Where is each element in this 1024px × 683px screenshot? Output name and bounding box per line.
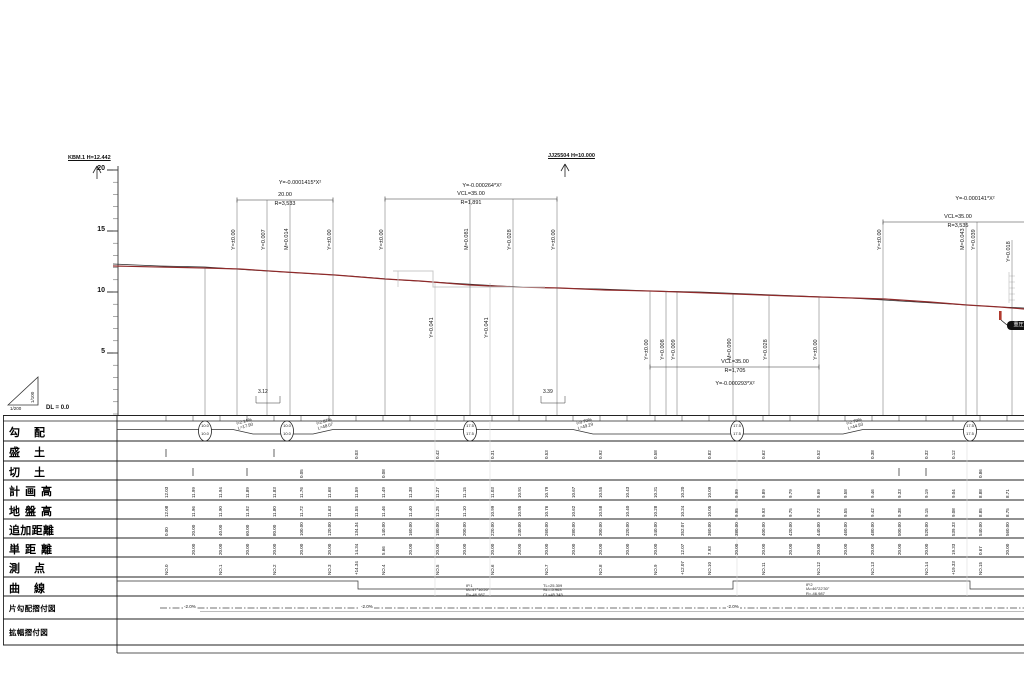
station-dist-value: 5.66 bbox=[381, 546, 386, 555]
offset-label: M=0.043 bbox=[960, 228, 966, 250]
station-plan-value: 9.69 bbox=[816, 489, 821, 498]
station-plan-value: 11.49 bbox=[381, 487, 386, 498]
station-cum-value: 540.00 bbox=[978, 522, 983, 536]
row-label-6: 単距離 bbox=[9, 541, 115, 557]
station-plan-value: 10.09 bbox=[707, 487, 712, 498]
station-cum-value: 134.34 bbox=[354, 522, 359, 536]
station-sta-value: NO.5 bbox=[435, 564, 440, 575]
vc-length-label: 20.00 bbox=[255, 192, 315, 198]
curve-data-cluster: IP.1 IA=47°16'20" R=-46.987 bbox=[466, 584, 489, 597]
station-plan-value: 11.38 bbox=[408, 487, 413, 498]
station-sta-value: NO.1 bbox=[218, 564, 223, 575]
vc-formula: Y=-0.0001415*X² bbox=[255, 180, 345, 186]
station-plan-value: 9.19 bbox=[924, 489, 929, 498]
offset-label: Y=±0.00 bbox=[327, 229, 333, 250]
station-sta-value: NO.10 bbox=[707, 562, 712, 575]
station-cum-value: 180.00 bbox=[435, 522, 440, 536]
row-label-10: 拡幅摺付図 bbox=[9, 627, 115, 638]
row-label-5: 追加距離 bbox=[9, 522, 115, 538]
station-plan-value: 8.71 bbox=[1005, 489, 1010, 498]
vc-length-label: VCL=35.00 bbox=[441, 191, 501, 197]
offset-label: M=0.090 bbox=[727, 338, 733, 360]
offset-label: Y=0.041 bbox=[429, 317, 435, 338]
station-cum-value: 100.00 bbox=[299, 522, 304, 536]
offset-label: M=0.014 bbox=[284, 228, 290, 250]
station-cum-value: 80.00 bbox=[272, 525, 277, 536]
station-cum-value: 500.00 bbox=[897, 522, 902, 536]
station-ground-value: 9.75 bbox=[788, 508, 793, 517]
oval-value-top: 17.5 bbox=[730, 423, 744, 428]
station-plan-value: 11.94 bbox=[218, 487, 223, 498]
row-label-7: 測点 bbox=[9, 560, 115, 576]
station-cum-value: 380.00 bbox=[734, 522, 739, 536]
station-cut-value: 0.05 bbox=[299, 469, 304, 478]
ground-line bbox=[113, 264, 1024, 308]
station-ground-value: 10.28 bbox=[653, 506, 658, 517]
row-label-4: 地盤高 bbox=[9, 503, 115, 519]
station-cum-value: 480.00 bbox=[870, 522, 875, 536]
station-cum-value: 0.00 bbox=[164, 527, 169, 536]
station-dist-value: 20.00 bbox=[462, 544, 467, 555]
axis-tick-label: 15 bbox=[92, 226, 105, 233]
station-dist-value: 19.33 bbox=[951, 544, 956, 555]
offset-label: Y=0.028 bbox=[763, 339, 769, 360]
station-ground-value: 9.15 bbox=[924, 508, 929, 517]
station-ground-value: 10.62 bbox=[571, 506, 576, 517]
axis-tick-label: 10 bbox=[92, 287, 105, 294]
offset-label: Y=0.007 bbox=[261, 229, 267, 250]
station-ground-value: 11.63 bbox=[327, 506, 332, 517]
pipe-marker bbox=[999, 311, 1002, 320]
station-ground-value: 9.38 bbox=[897, 508, 902, 517]
station-fill-value: 0.12 bbox=[951, 450, 956, 459]
offset-label: Y=0.041 bbox=[484, 317, 490, 338]
station-cum-value: 200.00 bbox=[462, 522, 467, 536]
gradient-line bbox=[117, 430, 1024, 435]
station-ground-value: 11.90 bbox=[218, 506, 223, 517]
station-fill-value: 0.92 bbox=[598, 450, 603, 459]
offset-label: Y=0.008 bbox=[660, 339, 666, 360]
station-sta-value: NO.4 bbox=[381, 564, 386, 575]
station-plan-value: 11.03 bbox=[490, 487, 495, 498]
curve-bracket-line bbox=[117, 581, 1024, 589]
station-cum-value: 160.00 bbox=[408, 522, 413, 536]
offset-label: Y=0.018 bbox=[1006, 241, 1012, 262]
station-sta-value: NO.13 bbox=[870, 562, 875, 575]
station-dist-value: 20.00 bbox=[490, 544, 495, 555]
station-dist-value: 20.00 bbox=[761, 544, 766, 555]
depth-label: 3.39 bbox=[543, 389, 553, 395]
station-dist-value: 20.00 bbox=[245, 544, 250, 555]
station-ground-value: 11.25 bbox=[435, 506, 440, 517]
offset-label: Y=±0.00 bbox=[813, 339, 819, 360]
station-ground-value: 10.58 bbox=[598, 506, 603, 517]
station-fill-value: 0.03 bbox=[354, 450, 359, 459]
station-dist-value: 14.34 bbox=[354, 544, 359, 555]
datum-label: DL = 0.0 bbox=[46, 405, 69, 411]
station-cum-value: 120.00 bbox=[327, 522, 332, 536]
station-dist-value: 20.00 bbox=[544, 544, 549, 555]
station-ground-value: 11.10 bbox=[462, 506, 467, 517]
oval-value-bottom: 17.5 bbox=[730, 431, 744, 436]
superelevation-value: -2.0% bbox=[183, 604, 197, 609]
station-sta-value: +12.07 bbox=[680, 561, 685, 575]
station-fill-value: 0.53 bbox=[544, 450, 549, 459]
station-plan-value: 10.67 bbox=[571, 487, 576, 498]
row-label-9: 片勾配摺付図 bbox=[9, 603, 115, 614]
station-dist-value: 20.00 bbox=[218, 544, 223, 555]
station-plan-value: 11.99 bbox=[191, 487, 196, 498]
station-ground-value: 10.05 bbox=[707, 506, 712, 517]
station-fill-value: 0.58 bbox=[653, 450, 658, 459]
vc-length-label: VCL=35.00 bbox=[928, 214, 988, 220]
offset-label: Y=0.028 bbox=[507, 229, 513, 250]
profile-drawing-sheet: DL = 0.0 1/100 1/200 重圧管 2015105KBM.1 H=… bbox=[0, 0, 1024, 683]
oval-value-bottom: 10.0 bbox=[198, 431, 212, 436]
station-sta-value: NO.3 bbox=[327, 564, 332, 575]
station-plan-value: 10.20 bbox=[680, 487, 685, 498]
station-plan-value: 9.79 bbox=[788, 489, 793, 498]
station-dist-value: 20.00 bbox=[435, 544, 440, 555]
offset-label: Y=±0.00 bbox=[644, 339, 650, 360]
station-ground-value: 9.93 bbox=[761, 508, 766, 517]
station-plan-value: 11.89 bbox=[245, 487, 250, 498]
station-sta-value: NO.6 bbox=[490, 564, 495, 575]
benchmark-label: KBM.1 H=12.442 bbox=[68, 155, 111, 161]
pipe-label: 重圧管 bbox=[1007, 321, 1024, 330]
station-fill-value: 0.38 bbox=[870, 450, 875, 459]
axis-tick-label: 5 bbox=[92, 348, 105, 355]
offset-label: Y=0.039 bbox=[971, 229, 977, 250]
oval-value-top: 10.0 bbox=[280, 423, 294, 428]
station-dist-value: 20.00 bbox=[843, 544, 848, 555]
station-cum-value: 340.00 bbox=[653, 522, 658, 536]
curve-data-cluster: TL=25.309 SL=-5.963 CL=45.345 bbox=[543, 584, 563, 597]
station-fill-value: 0.31 bbox=[490, 450, 495, 459]
station-ground-value: 12.08 bbox=[164, 506, 169, 517]
superelevation-value: -2.0% bbox=[726, 604, 740, 609]
station-cum-value: 300.00 bbox=[598, 522, 603, 536]
station-plan-value: 11.15 bbox=[462, 487, 467, 498]
station-dist-value: 20.00 bbox=[517, 544, 522, 555]
offset-label: M=0.081 bbox=[464, 228, 470, 250]
oval-value-top: 10.0 bbox=[198, 423, 212, 428]
station-cum-value: 140.00 bbox=[381, 522, 386, 536]
station-cum-value: 460.00 bbox=[843, 522, 848, 536]
vc-radius-label: R=1,705 bbox=[705, 368, 765, 374]
vc-radius-label: R=1,891 bbox=[441, 200, 501, 206]
station-dist-value: 20.00 bbox=[1005, 544, 1010, 555]
station-plan-value: 11.27 bbox=[435, 487, 440, 498]
station-sta-value: NO.9 bbox=[653, 564, 658, 575]
station-cut-value: 0.86 bbox=[978, 469, 983, 478]
offset-label: Y=±0.00 bbox=[877, 229, 883, 250]
station-plan-value: 8.88 bbox=[978, 489, 983, 498]
station-plan-value: 11.76 bbox=[299, 487, 304, 498]
station-plan-value: 10.91 bbox=[517, 487, 522, 498]
station-dist-value: 20.00 bbox=[272, 544, 277, 555]
station-fill-value: 0.32 bbox=[924, 450, 929, 459]
station-dist-value: 20.00 bbox=[734, 544, 739, 555]
station-dist-value: 12.07 bbox=[680, 544, 685, 555]
depth-label: 3.12 bbox=[258, 389, 268, 395]
station-cum-value: 420.00 bbox=[788, 522, 793, 536]
station-sta-value: NO.14 bbox=[924, 562, 929, 575]
station-ground-value: 11.80 bbox=[272, 506, 277, 517]
station-cum-value: 560.00 bbox=[1005, 522, 1010, 536]
station-cum-value: 360.00 bbox=[707, 522, 712, 536]
station-cum-value: 520.00 bbox=[924, 522, 929, 536]
station-plan-value: 9.89 bbox=[761, 489, 766, 498]
station-fill-value: 0.42 bbox=[435, 450, 440, 459]
vc-formula: Y=-0.000293*X² bbox=[690, 381, 780, 387]
station-dist-value: 20.00 bbox=[408, 544, 413, 555]
row-label-1: 盛土 bbox=[9, 444, 115, 460]
oval-value-bottom: 10.0 bbox=[280, 431, 294, 436]
station-ground-value: 11.72 bbox=[299, 506, 304, 517]
station-ground-value: 10.40 bbox=[625, 506, 630, 517]
station-cum-value: 60.00 bbox=[245, 525, 250, 536]
station-cum-value: 539.33 bbox=[951, 522, 956, 536]
station-dist-value: 20.00 bbox=[191, 544, 196, 555]
station-dist-value: 20.00 bbox=[625, 544, 630, 555]
vc-formula: Y=-0.000264*X² bbox=[437, 183, 527, 189]
station-ground-value: 9.72 bbox=[816, 508, 821, 517]
station-ground-value: 11.92 bbox=[245, 506, 250, 517]
station-dist-value: 20.00 bbox=[870, 544, 875, 555]
station-cut-value: 0.08 bbox=[381, 469, 386, 478]
station-plan-value: 11.59 bbox=[354, 487, 359, 498]
station-plan-value: 11.83 bbox=[272, 487, 277, 498]
station-sta-value: NO.12 bbox=[816, 562, 821, 575]
station-cum-value: 320.00 bbox=[625, 522, 630, 536]
scale-horizontal-label: 1/200 bbox=[10, 406, 21, 411]
station-sta-value: NO.7 bbox=[544, 564, 549, 575]
station-ground-value: 10.95 bbox=[517, 506, 522, 517]
station-sta-value: +14.34 bbox=[354, 561, 359, 575]
station-plan-value: 10.79 bbox=[544, 487, 549, 498]
station-plan-value: 10.43 bbox=[625, 487, 630, 498]
station-sta-value: NO.15 bbox=[978, 562, 983, 575]
station-plan-value: 9.04 bbox=[951, 489, 956, 498]
offset-label: Y=±0.00 bbox=[231, 229, 237, 250]
station-ground-value: 9.42 bbox=[870, 508, 875, 517]
station-dist-value: 7.93 bbox=[707, 546, 712, 555]
row-label-0: 勾配 bbox=[9, 424, 115, 440]
superelevation-value: -2.0% bbox=[360, 604, 374, 609]
benchmark-icon bbox=[565, 164, 569, 171]
row-label-8: 曲線 bbox=[9, 580, 115, 596]
station-ground-value: 11.40 bbox=[408, 506, 413, 517]
station-cum-value: 240.00 bbox=[517, 522, 522, 536]
station-plan-value: 12.03 bbox=[164, 487, 169, 498]
station-cum-value: 220.00 bbox=[490, 522, 495, 536]
station-sta-value: NO.2 bbox=[272, 564, 277, 575]
station-plan-value: 9.46 bbox=[870, 489, 875, 498]
station-dist-value: 20.00 bbox=[327, 544, 332, 555]
benchmark-label: JJ25504 H=10.000 bbox=[548, 153, 595, 159]
station-fill-value: 0.62 bbox=[761, 450, 766, 459]
station-cum-value: 20.00 bbox=[191, 525, 196, 536]
curve-data-cluster: IP.2 IA=46°22'30" R=-46.987 bbox=[806, 583, 829, 596]
station-plan-value: 11.68 bbox=[327, 487, 332, 498]
station-fill-value: 0.82 bbox=[707, 450, 712, 459]
station-ground-value: 9.08 bbox=[951, 508, 956, 517]
station-dist-value: 20.00 bbox=[571, 544, 576, 555]
station-cum-value: 352.07 bbox=[680, 522, 685, 536]
station-fill-value: 0.52 bbox=[816, 450, 821, 459]
station-cum-value: 440.00 bbox=[816, 522, 821, 536]
station-dist-value: 20.00 bbox=[299, 544, 304, 555]
station-ground-value: 10.99 bbox=[490, 506, 495, 517]
station-sta-value: NO.8 bbox=[598, 564, 603, 575]
oval-value-bottom: 17.5 bbox=[963, 431, 977, 436]
oval-value-bottom: 17.5 bbox=[463, 431, 477, 436]
station-dist-value: 20.00 bbox=[924, 544, 929, 555]
station-ground-value: 9.95 bbox=[734, 508, 739, 517]
oval-value-top: 17.5 bbox=[963, 423, 977, 428]
station-cum-value: 260.00 bbox=[544, 522, 549, 536]
station-ground-value: 10.76 bbox=[544, 506, 549, 517]
vc-radius-label: R=3,535 bbox=[928, 223, 988, 229]
offset-label: Y=0.009 bbox=[671, 339, 677, 360]
station-plan-value: 10.31 bbox=[653, 487, 658, 498]
drawing-canvas bbox=[0, 0, 1024, 683]
station-cum-value: 400.00 bbox=[761, 522, 766, 536]
station-dist-value: 20.00 bbox=[816, 544, 821, 555]
station-dist-value: 20.00 bbox=[653, 544, 658, 555]
benchmark-icon bbox=[561, 164, 565, 171]
vc-length-label: VCL=35.00 bbox=[705, 359, 765, 365]
row-label-2: 切土 bbox=[9, 464, 115, 480]
plan-line bbox=[113, 266, 1024, 309]
station-dist-value: 20.00 bbox=[788, 544, 793, 555]
station-ground-value: 11.55 bbox=[354, 506, 359, 517]
station-cum-value: 280.00 bbox=[571, 522, 576, 536]
station-plan-value: 9.33 bbox=[897, 489, 902, 498]
station-ground-value: 11.96 bbox=[191, 506, 196, 517]
station-ground-value: 11.46 bbox=[381, 506, 386, 517]
station-dist-value: 0.67 bbox=[978, 546, 983, 555]
station-ground-value: 9.55 bbox=[843, 508, 848, 517]
station-sta-value: +19.33 bbox=[951, 561, 956, 575]
scale-vertical-label: 1/100 bbox=[30, 392, 36, 403]
station-plan-value: 10.55 bbox=[598, 487, 603, 498]
station-sta-value: NO.0 bbox=[164, 564, 169, 575]
station-dist-value: 20.00 bbox=[598, 544, 603, 555]
station-ground-value: 8.85 bbox=[978, 508, 983, 517]
station-cum-value: 40.00 bbox=[218, 525, 223, 536]
axis-tick-label: 20 bbox=[92, 165, 105, 172]
station-plan-value: 9.58 bbox=[843, 489, 848, 498]
oval-value-top: 17.5 bbox=[463, 423, 477, 428]
station-ground-value: 8.75 bbox=[1005, 508, 1010, 517]
row-label-3: 計画高 bbox=[9, 483, 115, 499]
station-ground-value: 10.24 bbox=[680, 506, 685, 517]
station-dist-value: 20.00 bbox=[897, 544, 902, 555]
station-plan-value: 9.99 bbox=[734, 489, 739, 498]
vc-formula: Y=-0.000141*X² bbox=[930, 196, 1020, 202]
offset-label: Y=±0.00 bbox=[379, 229, 385, 250]
station-sta-value: NO.11 bbox=[761, 562, 766, 575]
offset-label: Y=±0.00 bbox=[551, 229, 557, 250]
vc-radius-label: R=3,533 bbox=[255, 201, 315, 207]
